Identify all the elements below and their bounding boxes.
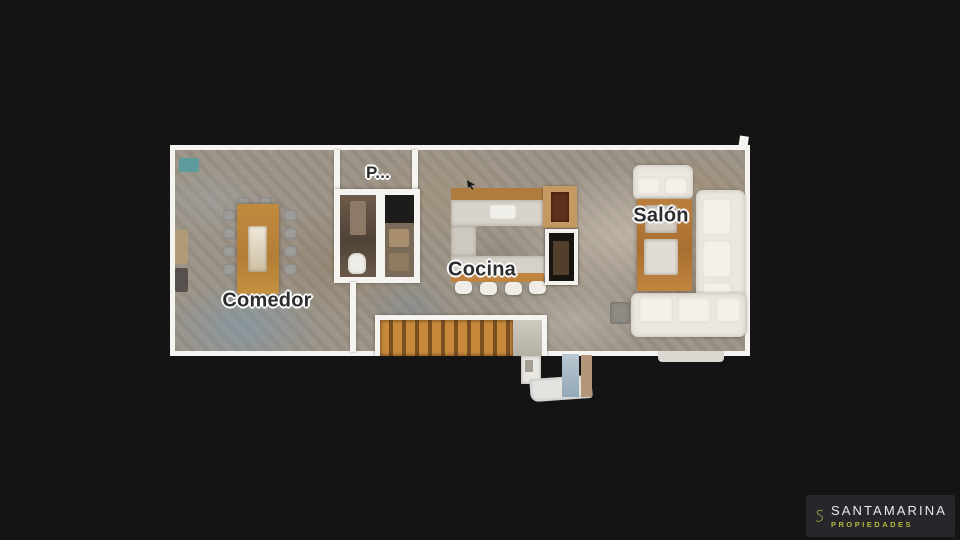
wall-comedor-stairs xyxy=(350,282,356,352)
vanity xyxy=(389,229,409,247)
stairwell-wood-edge xyxy=(581,355,592,397)
left-dark-unit xyxy=(175,268,188,292)
room-label-salon[interactable]: Salón xyxy=(633,205,688,228)
dining-chair xyxy=(284,264,297,275)
dining-chair xyxy=(223,264,236,275)
brand-text-block: SANTAMARINA PROPIEDADES xyxy=(831,504,947,529)
dining-chair xyxy=(223,246,236,257)
s-monogram-icon xyxy=(815,501,824,531)
bathroom-left-floor xyxy=(340,195,376,277)
brand-name: SANTAMARINA xyxy=(831,504,947,518)
wall-p-room-right xyxy=(412,150,418,192)
bar-stool xyxy=(455,281,472,294)
room-label-cocina[interactable]: Cocina xyxy=(448,259,516,282)
kitchen-counter-top xyxy=(451,200,545,226)
viewer-canvas[interactable]: { "scene": { "view_type": "3d-dollhouse-… xyxy=(0,0,960,540)
bathroom-right-floor xyxy=(385,195,414,277)
dining-chair xyxy=(284,246,297,257)
toilet xyxy=(348,253,366,274)
stairwell-step xyxy=(525,360,533,372)
bathroom-dark-void xyxy=(385,195,414,223)
wall-notch-top-right xyxy=(738,135,749,150)
stairwell-exit xyxy=(519,354,595,404)
kitchen-sink xyxy=(489,204,517,220)
sofa-overhang xyxy=(658,351,724,362)
brand-tagline: PROPIEDADES xyxy=(831,520,947,529)
bar-stool xyxy=(529,281,546,294)
room-label-comedor[interactable]: Comedor xyxy=(222,290,311,313)
fridge xyxy=(553,241,569,275)
brand-logo: SANTAMARINA PROPIEDADES xyxy=(806,495,955,537)
shower-tray xyxy=(350,201,366,235)
bathroom-cabinet xyxy=(389,253,409,271)
stairwell-right-arm xyxy=(562,354,579,397)
room-label-p[interactable]: P... xyxy=(366,163,390,183)
stair-treads xyxy=(380,320,513,356)
table-runner xyxy=(248,226,267,272)
left-cabinet xyxy=(175,230,188,264)
loveseat xyxy=(633,165,693,200)
dining-chair xyxy=(223,210,236,221)
sofa-bottom-section xyxy=(631,293,746,337)
sideboard-teal xyxy=(179,158,199,172)
floorplan[interactable]: P... Comedor Cocina Salón xyxy=(170,145,750,356)
coffee-table-decor xyxy=(644,239,678,275)
kitchen-tall-unit xyxy=(543,186,577,228)
stair-landing xyxy=(513,320,542,356)
arrow-cursor-icon xyxy=(465,178,477,190)
side-table xyxy=(610,302,630,324)
fridge-niche xyxy=(545,229,578,285)
staircase xyxy=(375,315,547,356)
kitchen-counter-left-arm xyxy=(451,226,476,256)
bathroom-block xyxy=(334,189,420,283)
bar-stool xyxy=(505,282,522,295)
dining-chair xyxy=(223,228,236,239)
oven xyxy=(551,192,569,222)
dining-table xyxy=(237,204,279,294)
bar-stool xyxy=(480,282,497,295)
dining-chair xyxy=(284,210,297,221)
wall-p-room-left xyxy=(334,150,340,192)
dining-chair xyxy=(284,228,297,239)
